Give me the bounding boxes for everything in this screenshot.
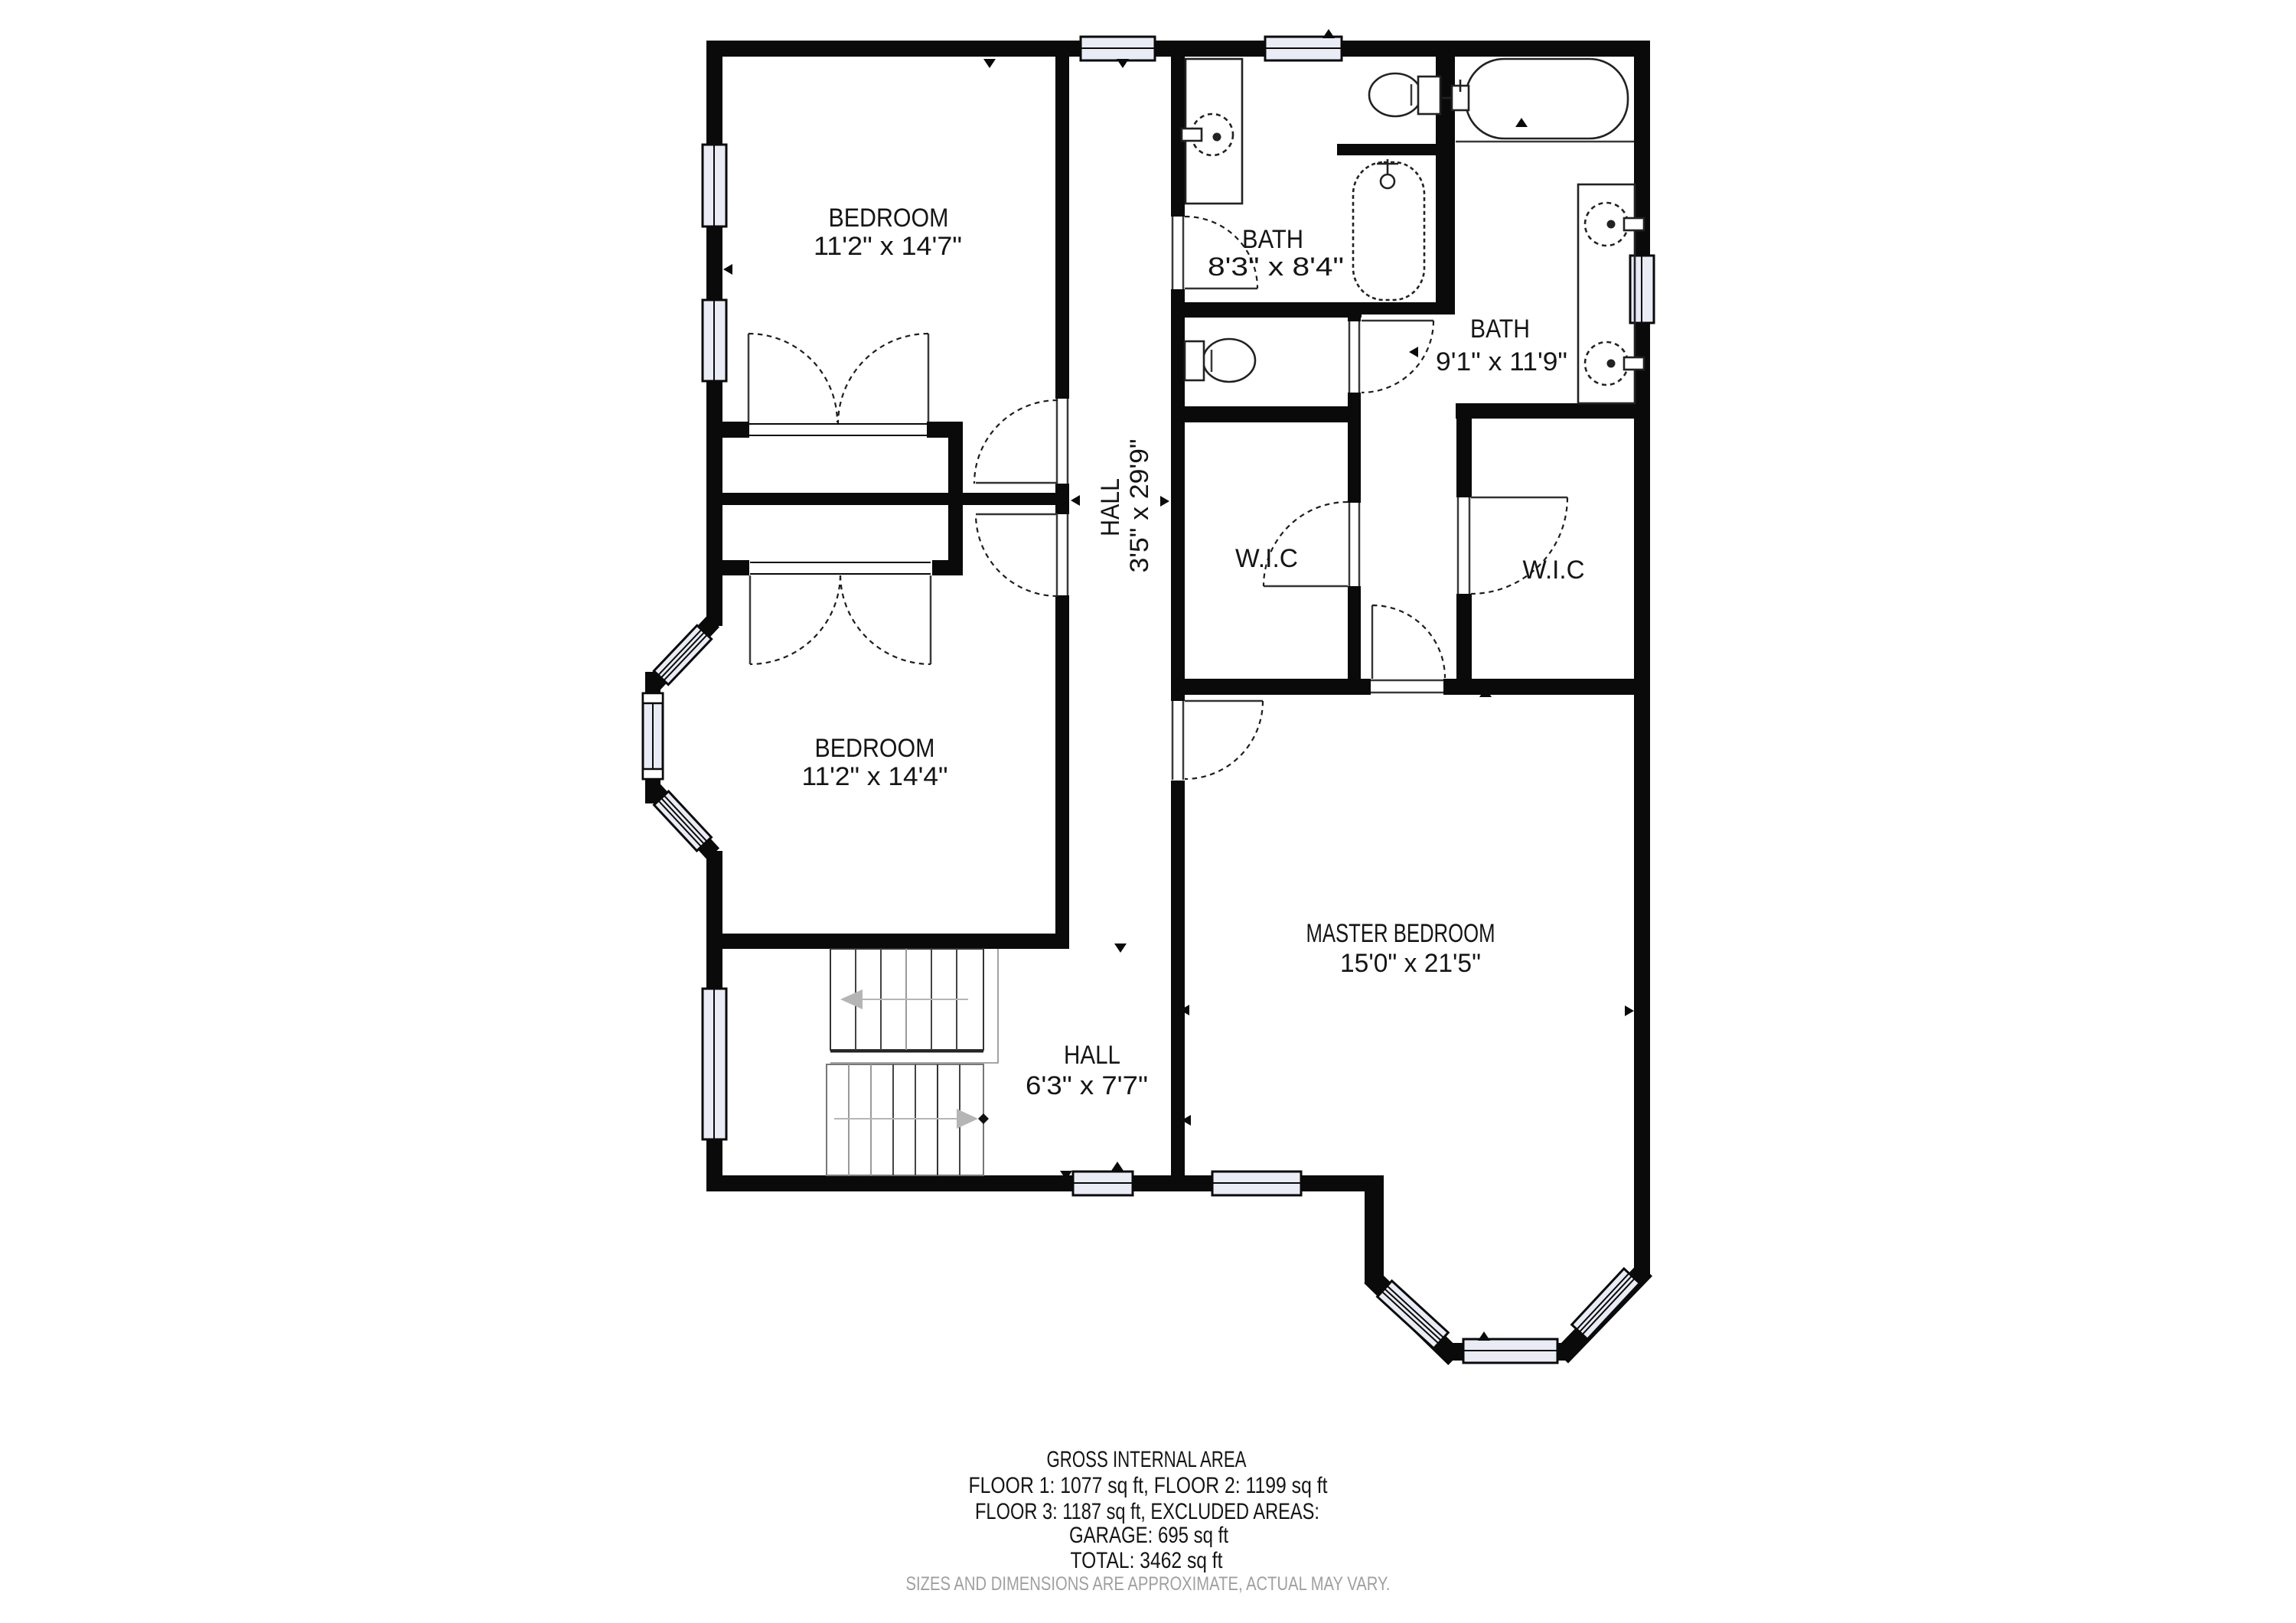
svg-text:GROSS INTERNAL AREA: GROSS INTERNAL AREA xyxy=(1047,1447,1247,1472)
svg-text:MASTER BEDROOM: MASTER BEDROOM xyxy=(1306,919,1495,948)
svg-text:3'5" x 29'9": 3'5" x 29'9" xyxy=(1125,439,1154,573)
svg-text:W.I.C: W.I.C xyxy=(1235,544,1298,573)
svg-text:BEDROOM: BEDROOM xyxy=(829,204,949,233)
svg-text:BATH: BATH xyxy=(1470,314,1530,344)
svg-text:8'3" x 8'4": 8'3" x 8'4" xyxy=(1208,253,1344,282)
svg-text:9'1" x 11'9": 9'1" x 11'9" xyxy=(1436,347,1567,376)
svg-text:15'0" x 21'5": 15'0" x 21'5" xyxy=(1340,949,1481,978)
svg-text:HALL: HALL xyxy=(1064,1041,1120,1070)
svg-text:BEDROOM: BEDROOM xyxy=(815,734,935,763)
svg-text:FLOOR 3: 1187 sq ft, EXCLUDED: FLOOR 3: 1187 sq ft, EXCLUDED AREAS: xyxy=(975,1499,1319,1524)
svg-text:SIZES AND DIMENSIONS ARE APPRO: SIZES AND DIMENSIONS ARE APPROXIMATE, AC… xyxy=(906,1573,1391,1595)
svg-text:GARAGE: 695 sq ft: GARAGE: 695 sq ft xyxy=(1069,1523,1229,1548)
svg-text:BATH: BATH xyxy=(1242,225,1303,254)
svg-text:6'3" x 7'7": 6'3" x 7'7" xyxy=(1026,1071,1148,1100)
svg-text:W.I.C: W.I.C xyxy=(1523,556,1585,585)
svg-text:11'2" x 14'4": 11'2" x 14'4" xyxy=(802,762,948,791)
svg-text:HALL: HALL xyxy=(1096,478,1125,536)
svg-text:FLOOR 1: 1077 sq ft, FLOOR 2:: FLOOR 1: 1077 sq ft, FLOOR 2: 1199 sq ft xyxy=(969,1473,1329,1498)
svg-text:TOTAL: 3462 sq ft: TOTAL: 3462 sq ft xyxy=(1071,1548,1224,1573)
svg-text:11'2" x 14'7": 11'2" x 14'7" xyxy=(814,232,962,261)
